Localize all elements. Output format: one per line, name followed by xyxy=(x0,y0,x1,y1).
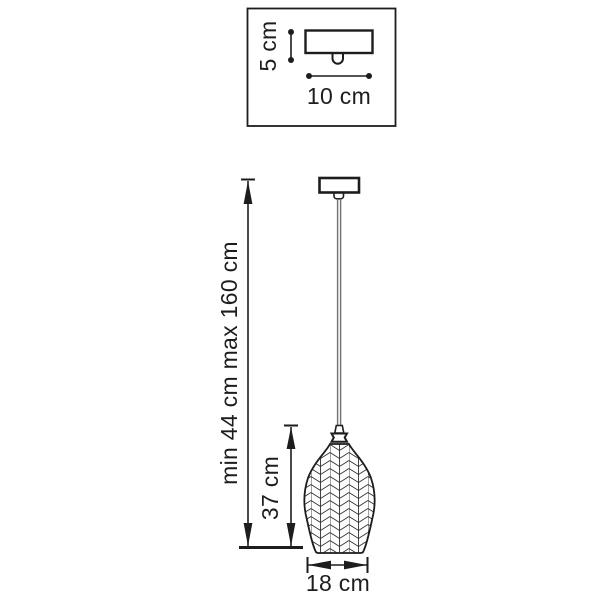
dimension-endpoint-dot xyxy=(288,57,294,63)
dimension-endpoint-dot xyxy=(288,29,294,35)
shade-width-dimension: 18 cm xyxy=(306,557,370,596)
arrow-down-icon xyxy=(287,523,296,546)
arrow-up-icon xyxy=(244,181,253,204)
arrow-down-icon xyxy=(244,523,253,546)
socket-collar xyxy=(332,434,348,442)
canopy-width-dimension: 10 cm xyxy=(306,73,372,109)
shade-width-label: 18 cm xyxy=(306,570,370,596)
overall-height-dimension: min 44 cm max 160 cm xyxy=(216,180,255,547)
arrow-up-icon xyxy=(287,427,296,449)
glass-shade xyxy=(300,440,380,558)
pendant-dimensions-diagram: 5 cm 10 cm min 44 cm max xyxy=(0,0,600,600)
dimension-endpoint-dot xyxy=(366,73,372,79)
pendant-lamp-drawing xyxy=(300,178,380,558)
socket-cap xyxy=(335,426,344,434)
diagram-canvas: 5 cm 10 cm min 44 cm max xyxy=(0,0,600,600)
ceiling-mount xyxy=(320,178,360,193)
canopy-height-dimension: 5 cm xyxy=(255,20,294,71)
canopy-detail-panel: 5 cm 10 cm xyxy=(248,9,396,127)
arrow-left-icon xyxy=(308,561,331,570)
arrow-right-icon xyxy=(344,561,367,570)
dimension-endpoint-dot xyxy=(306,73,312,79)
canopy-stem xyxy=(333,53,344,64)
shade-height-label: 37 cm xyxy=(257,456,283,520)
canopy-front-view xyxy=(306,31,373,54)
overall-height-label: min 44 cm max 160 cm xyxy=(216,241,242,485)
shade-height-dimension: 37 cm xyxy=(257,426,298,547)
canopy-height-label: 5 cm xyxy=(255,20,281,71)
canopy-width-label: 10 cm xyxy=(307,83,371,109)
